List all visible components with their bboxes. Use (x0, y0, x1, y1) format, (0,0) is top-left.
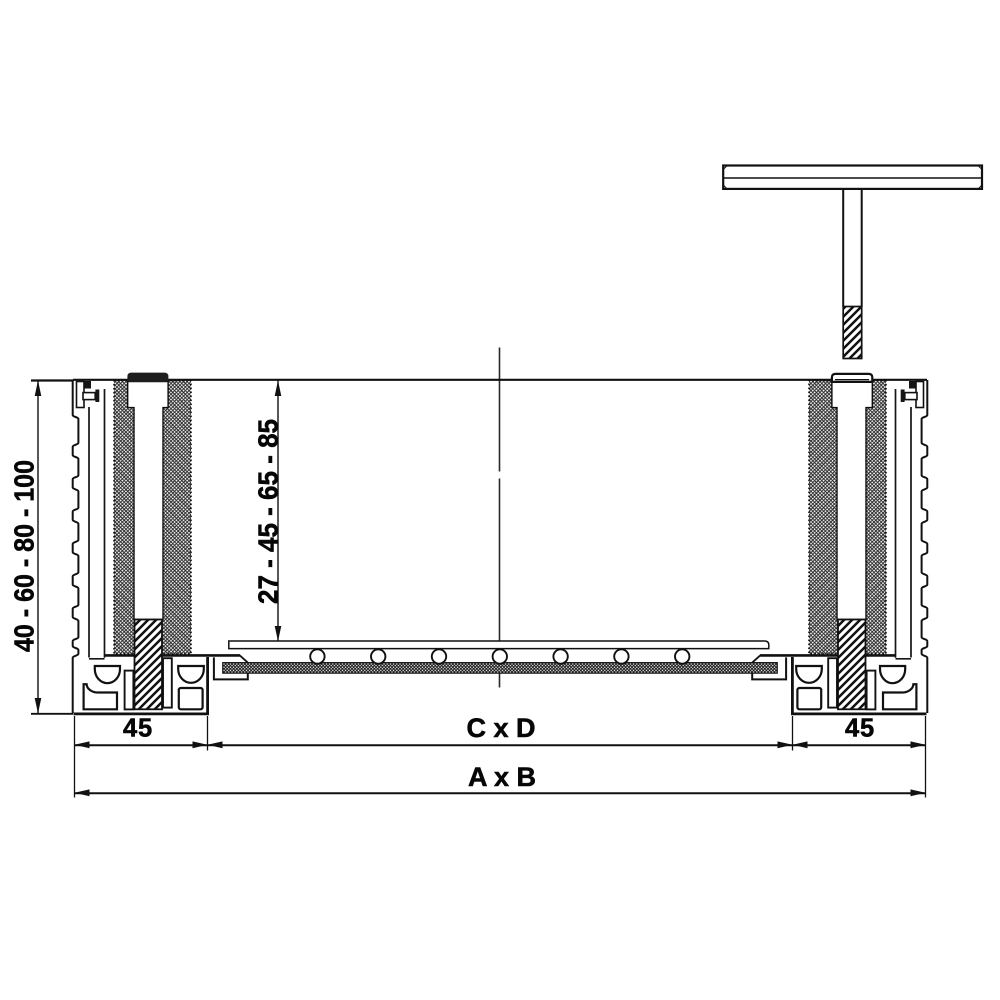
svg-text:C x D: C x D (466, 713, 535, 743)
svg-text:27 - 45 - 65 - 85: 27 - 45 - 65 - 85 (252, 419, 283, 604)
svg-text:45: 45 (123, 715, 153, 743)
svg-text:40 - 60 - 80 - 100: 40 - 60 - 80 - 100 (9, 460, 40, 652)
svg-text:A x B: A x B (468, 762, 536, 792)
svg-text:45: 45 (845, 715, 875, 743)
